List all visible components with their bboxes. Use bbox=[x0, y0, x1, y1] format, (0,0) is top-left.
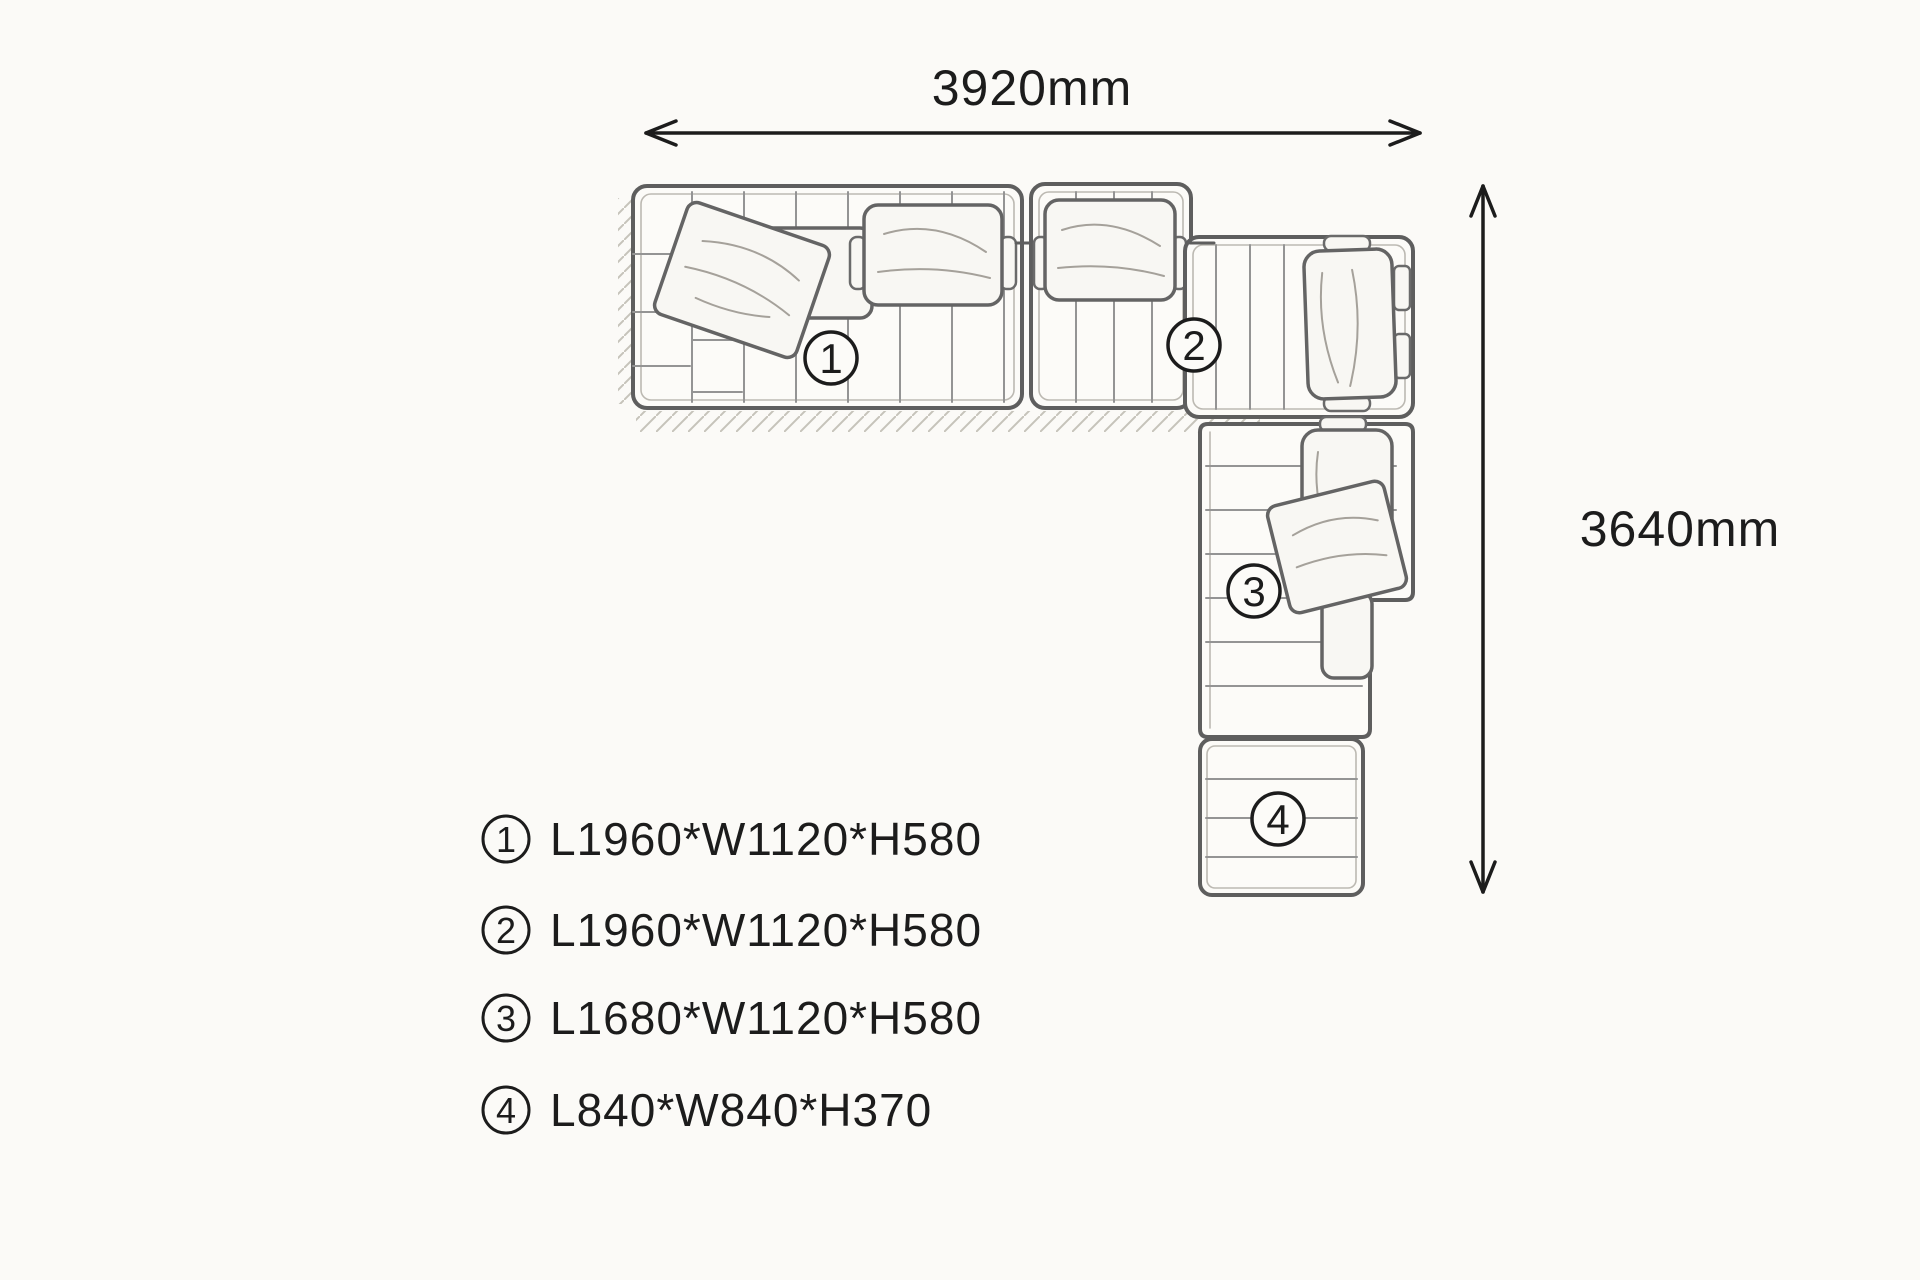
legend-number-2: 2 bbox=[496, 910, 516, 951]
legend-number-4: 4 bbox=[496, 1090, 516, 1131]
height-dimension-label: 3640mm bbox=[1580, 501, 1781, 557]
hatch-left-edge bbox=[618, 198, 633, 404]
module-3: 3 bbox=[1200, 417, 1413, 737]
module-3-label-number: 3 bbox=[1242, 568, 1265, 615]
legend-number-3: 3 bbox=[496, 998, 516, 1039]
width-dimension-label: 3920mm bbox=[932, 60, 1133, 116]
legend-number-1: 1 bbox=[496, 819, 516, 860]
furniture-dimension-diagram: 1 bbox=[0, 0, 1920, 1280]
module-label-3: 3 bbox=[1228, 565, 1280, 617]
module-1-label-number: 1 bbox=[819, 335, 842, 382]
legend: 1 L1960*W1120*H580 2 L1960*W1120*H580 3 … bbox=[483, 813, 982, 1136]
sofa-plan-sketch: 1 bbox=[0, 0, 1920, 1280]
legend-dims-1: L1960*W1120*H580 bbox=[550, 813, 982, 865]
legend-item-1: 1 L1960*W1120*H580 bbox=[483, 813, 982, 865]
module-4-label-number: 4 bbox=[1266, 796, 1289, 843]
module-label-4: 4 bbox=[1252, 793, 1304, 845]
sketch-root: 1 bbox=[483, 60, 1780, 1136]
module-label-1: 1 bbox=[805, 332, 857, 384]
corner-back-cushion bbox=[1303, 249, 1396, 400]
legend-item-4: 4 L840*W840*H370 bbox=[483, 1084, 932, 1136]
module-2-back-cushion bbox=[1045, 200, 1175, 300]
legend-dims-3: L1680*W1120*H580 bbox=[550, 992, 982, 1044]
legend-item-2: 2 L1960*W1120*H580 bbox=[483, 904, 982, 956]
module-1: 1 bbox=[633, 186, 1022, 408]
legend-item-3: 3 L1680*W1120*H580 bbox=[483, 992, 982, 1044]
hatch-below-top-run bbox=[636, 411, 1188, 432]
module-label-2: 2 bbox=[1168, 319, 1220, 371]
module-2: 2 bbox=[1031, 184, 1413, 417]
dimension-width: 3920mm bbox=[646, 60, 1420, 145]
module-4: 4 bbox=[1200, 739, 1363, 895]
dimension-height: 3640mm bbox=[1471, 186, 1780, 892]
corner-backrest-notch-top bbox=[1394, 266, 1410, 310]
module-2-label-number: 2 bbox=[1182, 322, 1205, 369]
legend-dims-2: L1960*W1120*H580 bbox=[550, 904, 982, 956]
legend-dims-4: L840*W840*H370 bbox=[550, 1084, 932, 1136]
module-1-back-cushion-right bbox=[864, 205, 1002, 305]
